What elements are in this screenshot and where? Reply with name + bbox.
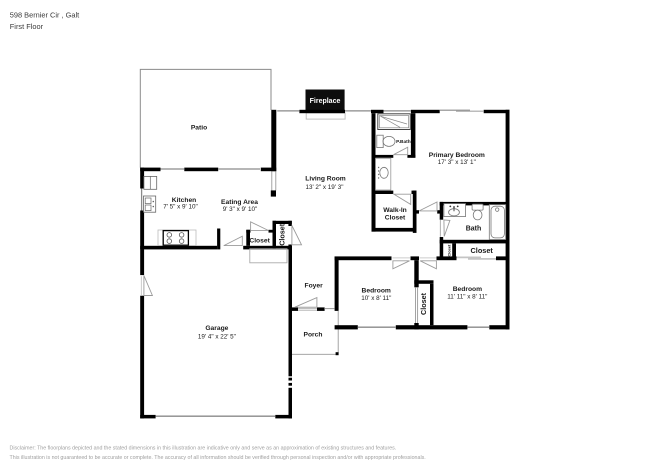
svg-text:Disclaimer: The floorplans dep: Disclaimer: The floorplans depicted and … (10, 446, 397, 452)
svg-text:19' 4" x 22' 5": 19' 4" x 22' 5" (198, 334, 236, 341)
svg-text:This illustration is not guara: This illustration is not guaranteed to b… (10, 455, 426, 460)
svg-text:Closet: Closet (249, 237, 270, 244)
svg-text:Bedroom: Bedroom (362, 288, 391, 295)
svg-text:Living Room: Living Room (305, 176, 346, 183)
svg-text:Closet: Closet (471, 246, 494, 255)
svg-text:Closet: Closet (385, 214, 406, 221)
svg-text:10' x 8' 11": 10' x 8' 11" (361, 295, 391, 302)
svg-text:9' 3" x 9' 10": 9' 3" x 9' 10" (223, 206, 258, 213)
svg-text:Eating Area: Eating Area (221, 199, 258, 206)
svg-text:11' 11" x 8' 11": 11' 11" x 8' 11" (447, 294, 487, 301)
svg-text:Fireplace: Fireplace (310, 98, 341, 105)
svg-text:Patio: Patio (191, 125, 207, 132)
svg-text:Closet: Closet (419, 292, 428, 315)
svg-text:Walk-In: Walk-In (383, 207, 407, 214)
svg-text:Porch: Porch (304, 332, 323, 339)
svg-text:Primary Bedroom: Primary Bedroom (429, 152, 485, 159)
svg-text:Garage: Garage (205, 325, 228, 332)
svg-text:Foyer: Foyer (304, 282, 323, 289)
svg-text:13' 2" x 19' 3": 13' 2" x 19' 3" (305, 184, 343, 191)
svg-text:P.Bath: P.Bath (396, 139, 411, 145)
svg-text:598 Bernier Cir , Galt: 598 Bernier Cir , Galt (10, 11, 79, 20)
svg-text:Closet: Closet (446, 244, 451, 257)
svg-text:First Floor: First Floor (10, 22, 44, 31)
svg-text:7' 5" x 9' 10": 7' 5" x 9' 10" (163, 204, 198, 211)
svg-text:Closet: Closet (278, 223, 287, 246)
svg-text:17' 3" x 13' 1": 17' 3" x 13' 1" (438, 159, 476, 166)
svg-text:Bedroom: Bedroom (453, 286, 482, 293)
svg-text:Bath: Bath (466, 225, 482, 232)
